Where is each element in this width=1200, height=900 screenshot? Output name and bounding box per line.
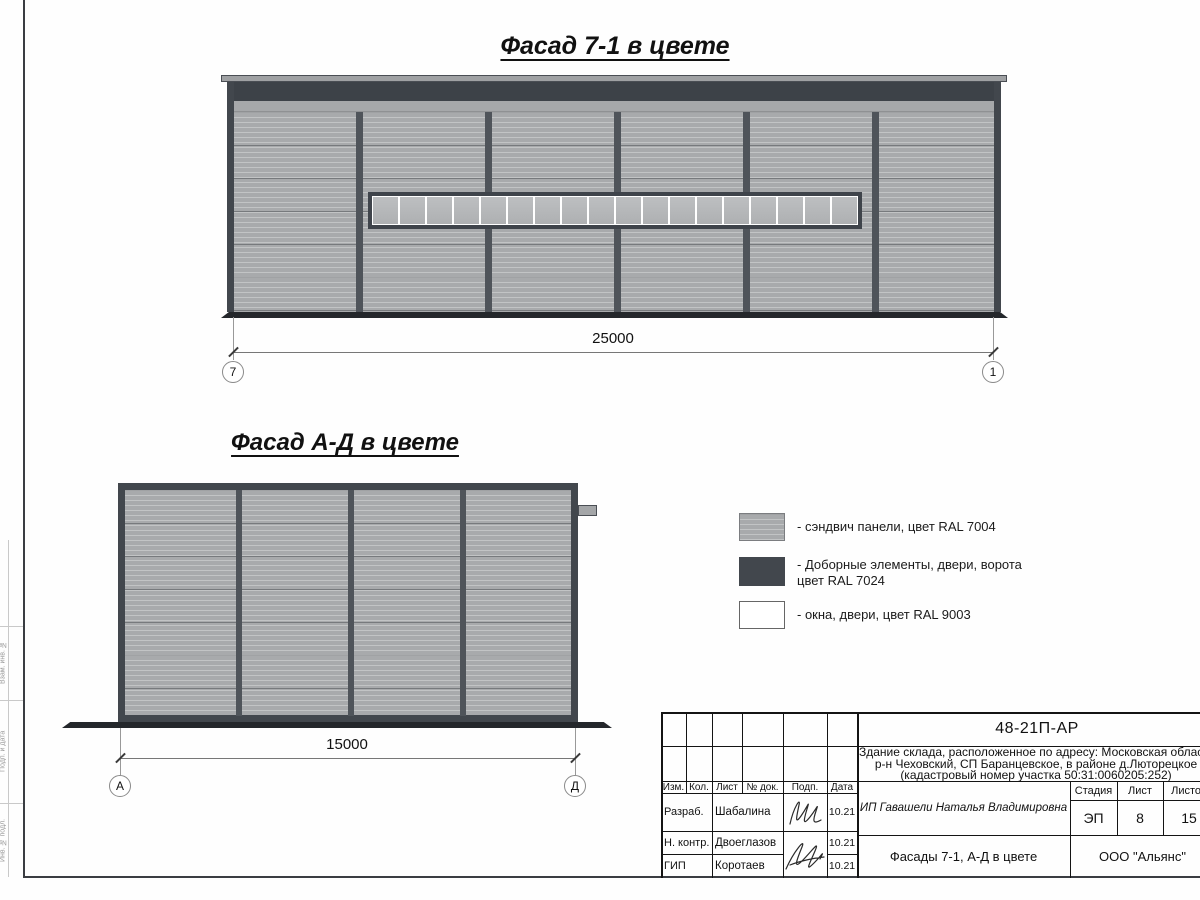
tb-header-kol: Кол. xyxy=(686,781,712,793)
window-pane xyxy=(373,197,398,224)
window-pane xyxy=(778,197,803,224)
column-strip xyxy=(872,112,879,312)
window-pane xyxy=(481,197,506,224)
tb-header-izm: Изм. xyxy=(661,781,686,793)
signature-korotaev-icon xyxy=(782,831,828,882)
column-strip xyxy=(460,490,466,716)
tb-doc-number: 48-21П-АР xyxy=(859,712,1200,746)
tb-header-ndok: № док. xyxy=(742,781,783,793)
tb-description-line3: (кадастровый номер участка 50:31:0060205… xyxy=(900,768,1171,782)
window-pane xyxy=(535,197,560,224)
window-pane xyxy=(832,197,857,224)
tb-sheets-value: 15 xyxy=(1163,800,1200,835)
axis-marker-7: 7 xyxy=(222,361,244,383)
window-pane xyxy=(697,197,722,224)
sheet-frame-left xyxy=(23,0,25,878)
drawing-sheet: Взам. инв. № Подп. и дата Инв. № подл. Ф… xyxy=(0,0,1200,900)
tb-stage-label: Стадия xyxy=(1070,781,1117,800)
window-pane xyxy=(427,197,452,224)
dimension-label: 25000 xyxy=(513,330,713,347)
tb-drawing-title: Фасады 7-1, А-Д в цвете xyxy=(857,835,1070,878)
tb-role-razrab: Разраб. xyxy=(661,793,712,831)
legend-label-ral7004: - сэндвич панели, цвет RAL 7004 xyxy=(797,519,996,535)
legend-swatch-ral7004 xyxy=(739,513,785,541)
wall-outlet xyxy=(578,505,597,516)
window-band xyxy=(368,192,862,229)
tb-sheet-value: 8 xyxy=(1117,800,1163,835)
window-pane xyxy=(805,197,830,224)
facade-a-d-title: Фасад А-Д в цвете xyxy=(145,429,545,457)
legend-swatch-ral9003 xyxy=(739,601,785,629)
signature-shabalina-icon xyxy=(784,794,826,835)
tb-client: ИП Гавашели Наталья Владимировна xyxy=(857,781,1070,835)
column-strip xyxy=(356,112,363,312)
facade-7-1-title: Фасад 7-1 в цвете xyxy=(215,32,1015,61)
margin-label-vzam-inv: Взам. инв. № xyxy=(0,626,9,700)
window-pane xyxy=(400,197,425,224)
margin-label-podp-data: Подп. и дата xyxy=(0,700,9,803)
edge-column-left xyxy=(227,82,234,312)
witness-line xyxy=(120,728,121,775)
tb-date: 10.21 xyxy=(827,831,857,854)
legend-label-ral7024: - Доборные элементы, двери, ворота цвет … xyxy=(797,557,1022,589)
dimension-line xyxy=(120,758,575,759)
tb-stage-value: ЭП xyxy=(1070,800,1117,835)
window-pane xyxy=(454,197,479,224)
parapet-band xyxy=(227,82,1001,101)
tb-role-gip: ГИП xyxy=(661,854,712,878)
edge-column-right xyxy=(994,82,1001,312)
window-pane xyxy=(508,197,533,224)
plinth-line xyxy=(62,722,612,728)
roof-cap xyxy=(221,75,1007,82)
tb-name-shabalina: Шабалина xyxy=(712,793,783,831)
column-strip xyxy=(348,490,354,716)
window-pane xyxy=(589,197,614,224)
tb-date: 10.21 xyxy=(827,854,857,878)
tb-header-podp: Подп. xyxy=(783,781,827,793)
column-strip xyxy=(236,490,242,716)
axis-marker-d: Д xyxy=(564,775,586,797)
dimension-label: 15000 xyxy=(247,736,447,753)
window-pane xyxy=(751,197,776,224)
witness-line xyxy=(575,728,576,775)
tb-header-data: Дата xyxy=(827,781,857,793)
axis-marker-a: А xyxy=(109,775,131,797)
window-pane xyxy=(562,197,587,224)
upper-panel-strip xyxy=(227,101,1001,112)
legend-label-line2: цвет RAL 7024 xyxy=(797,573,885,588)
tb-sheet-label: Лист xyxy=(1117,781,1163,800)
margin-label-inv-podl: Инв. № подл. xyxy=(0,803,9,877)
tb-sheets-label: Листов xyxy=(1163,781,1200,800)
legend-label-line1: - Доборные элементы, двери, ворота xyxy=(797,557,1022,572)
tb-description: Здание склада, расположенное по адресу: … xyxy=(859,747,1200,781)
dimension-line xyxy=(233,352,993,353)
window-pane xyxy=(616,197,641,224)
axis-marker-1: 1 xyxy=(982,361,1004,383)
tb-company: ООО "Альянс" xyxy=(1070,835,1200,878)
tb-name-korotaev: Коротаев xyxy=(712,854,783,878)
tb-date: 10.21 xyxy=(827,793,857,831)
window-pane xyxy=(724,197,749,224)
window-pane xyxy=(670,197,695,224)
plinth-line xyxy=(221,312,1008,318)
window-pane xyxy=(643,197,668,224)
legend-label-ral9003: - окна, двери, цвет RAL 9003 xyxy=(797,607,971,623)
legend-swatch-ral7024 xyxy=(739,557,785,586)
tb-name-dvoeglazov: Двоеглазов xyxy=(712,831,783,854)
tb-role-nkontr: Н. контр. xyxy=(661,831,712,854)
tb-header-list: Лист xyxy=(712,781,742,793)
